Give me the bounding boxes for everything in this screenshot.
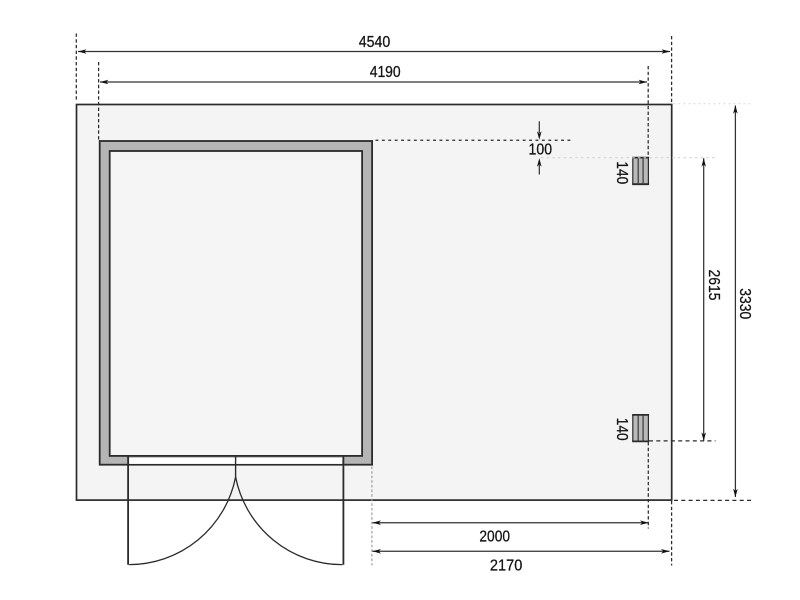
svg-text:3330: 3330 <box>736 288 753 319</box>
svg-text:140: 140 <box>613 418 630 441</box>
svg-text:2615: 2615 <box>705 270 722 301</box>
svg-text:2170: 2170 <box>490 557 523 574</box>
svg-text:4540: 4540 <box>359 34 391 51</box>
svg-text:2000: 2000 <box>479 529 510 546</box>
svg-text:140: 140 <box>613 161 630 184</box>
svg-text:4190: 4190 <box>370 64 401 81</box>
svg-text:100: 100 <box>529 141 553 158</box>
